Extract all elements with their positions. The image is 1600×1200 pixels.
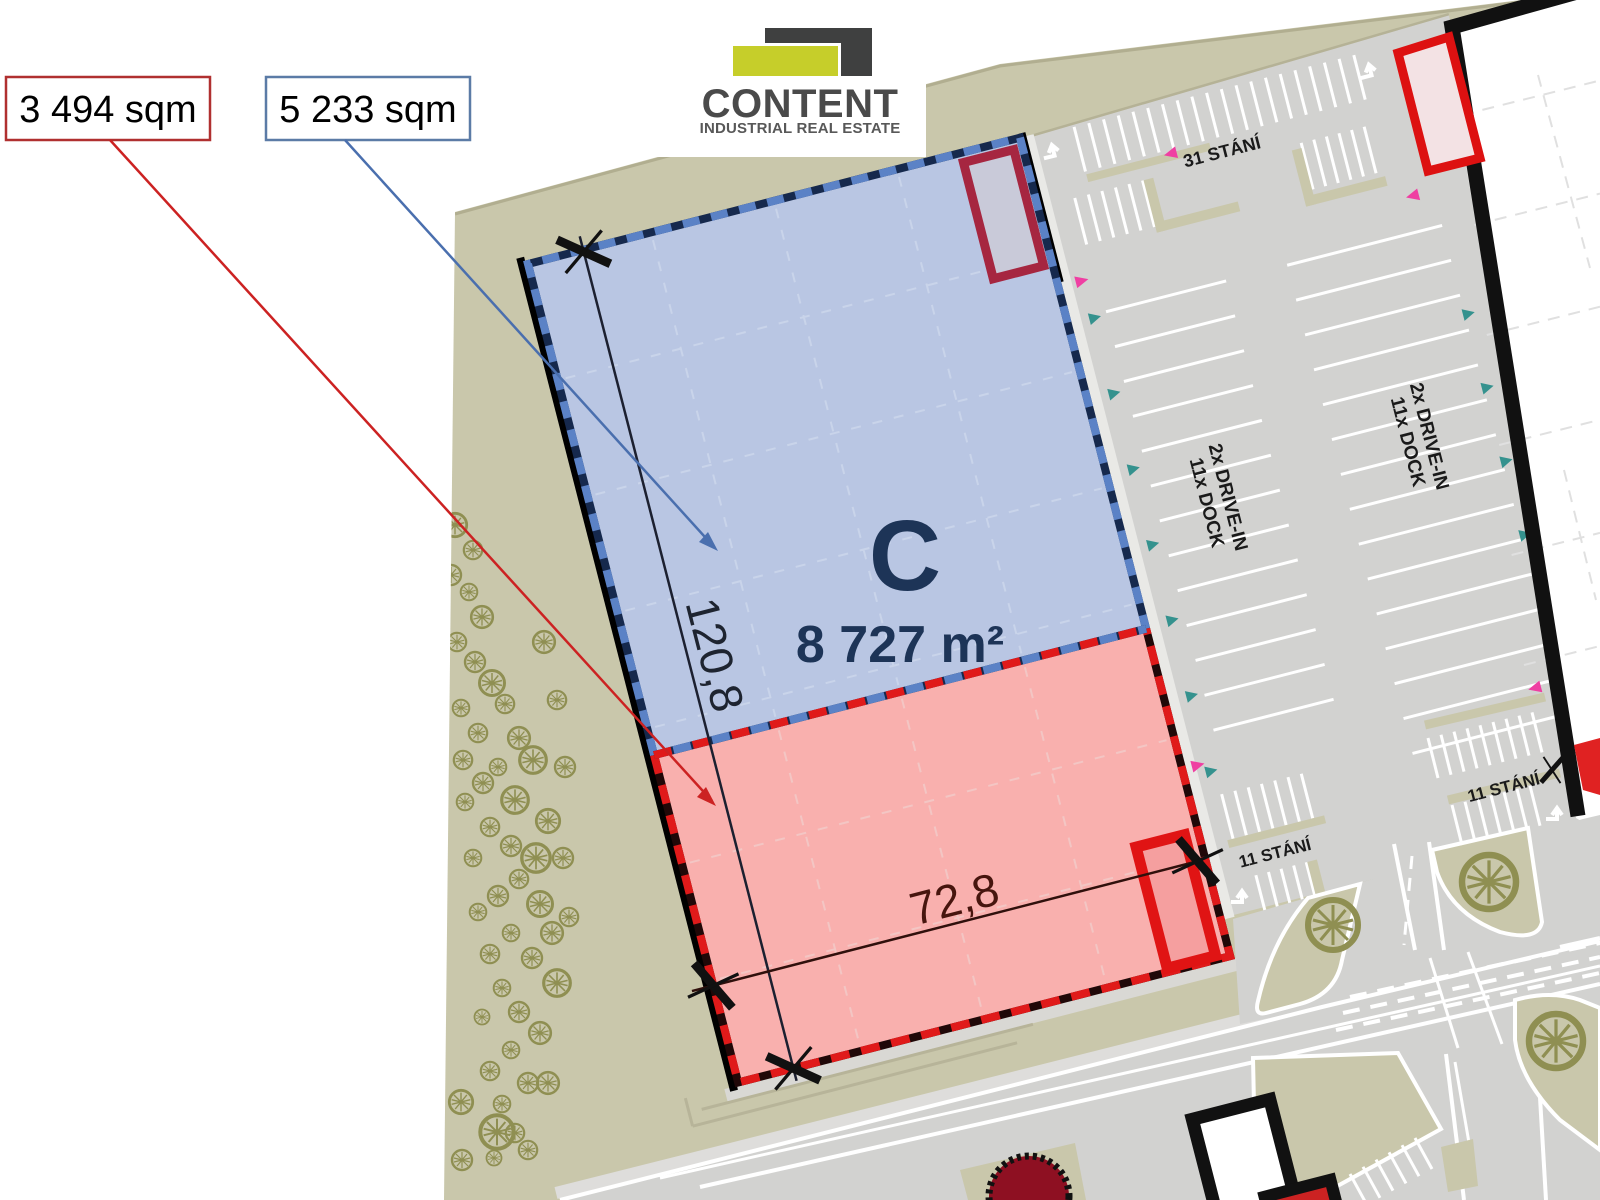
svg-text:3 494 sqm: 3 494 sqm [19,89,196,131]
svg-text:INDUSTRIAL REAL ESTATE: INDUSTRIAL REAL ESTATE [700,120,901,137]
svg-text:C: C [869,500,941,612]
svg-text:8 727 m²: 8 727 m² [796,616,1004,674]
svg-text:5 233 sqm: 5 233 sqm [279,89,456,131]
